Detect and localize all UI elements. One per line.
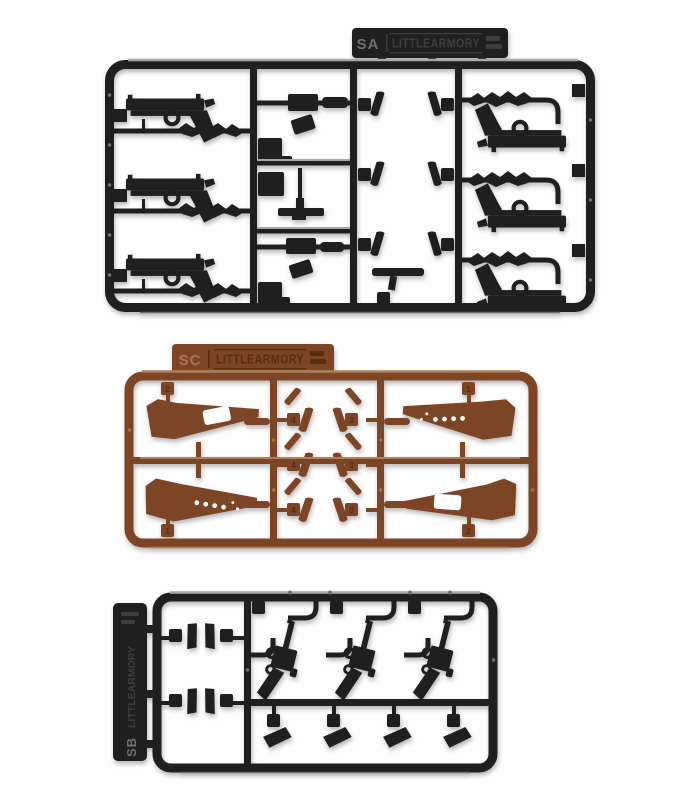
pistol-part — [126, 174, 217, 223]
sa-cell-r1 — [462, 84, 585, 152]
part-tab — [220, 629, 233, 642]
blade-part — [202, 687, 218, 715]
mauser-pistol-part — [411, 615, 465, 706]
sb-runner-frame — [157, 597, 493, 768]
stock-part — [144, 478, 258, 526]
gate-connector — [384, 418, 410, 425]
sa-tag-label: SA — [357, 36, 380, 53]
sa-grip-panel-column — [358, 90, 454, 305]
pistol-part — [475, 183, 566, 232]
sc-panel-row-2: 4 3 — [273, 431, 380, 478]
belt-part — [466, 171, 532, 187]
pistol-part — [475, 263, 566, 312]
sa-panel-row-1 — [358, 90, 454, 117]
part-number: 1 — [466, 384, 471, 394]
grip-panel-part — [298, 496, 314, 523]
stock-part — [404, 478, 518, 525]
part-number: 3 — [349, 505, 354, 515]
grip-panel-part — [298, 451, 314, 478]
pouch-part — [262, 726, 293, 748]
sprue-sc: SC LITTLEARMORY 2 1 — [128, 344, 535, 548]
grip-panel-part — [344, 386, 362, 406]
mauser-pistol-part — [333, 615, 387, 706]
part-tab — [572, 244, 585, 257]
sb-pistol-1 — [251, 597, 316, 706]
grip-panel-part — [427, 90, 442, 117]
part-tab — [572, 84, 585, 97]
blade-part — [184, 687, 200, 715]
pistol-part — [126, 254, 217, 303]
belt-part — [466, 251, 532, 267]
sa-cell-2 — [114, 174, 250, 223]
sb-pistol-3 — [404, 597, 472, 706]
part-number: 3 — [349, 415, 354, 425]
part-tab — [114, 109, 127, 122]
part-tab — [267, 714, 280, 727]
grip-panel-part — [283, 386, 301, 406]
pistol-part — [126, 94, 217, 143]
part-tab — [114, 189, 127, 202]
gate-connector — [244, 418, 270, 425]
part-tab — [114, 269, 127, 282]
blade-part — [202, 622, 218, 650]
grip-panel-part — [298, 406, 314, 433]
sc-panel-row-3: 4 3 — [273, 476, 380, 523]
small-part — [288, 259, 313, 279]
gate-connector — [384, 501, 410, 508]
part-number: 2 — [165, 384, 170, 394]
grip-panel-part — [283, 476, 301, 496]
suppressor-part — [322, 97, 348, 108]
part-tab — [447, 714, 460, 727]
sb-pistol-2 — [326, 597, 394, 706]
part-tab — [408, 601, 421, 614]
mauser-pistol-part — [255, 615, 309, 706]
grip-panel-part — [427, 230, 442, 257]
sa-panel-row-3 — [358, 230, 454, 257]
sc-tag-fine-print — [310, 351, 324, 356]
sc-panel-row-1: 4 3 — [273, 386, 380, 433]
sb-pouch-4 — [442, 706, 473, 749]
sb-tag-label: SB — [124, 737, 139, 757]
grip-panel-part — [427, 160, 442, 187]
product-photo: SA LITTLEARMORY — [0, 0, 690, 800]
sa-panel-row-2 — [358, 160, 454, 187]
grip-panel-part — [370, 230, 385, 257]
part-number: 4 — [291, 460, 296, 470]
sb-pouch-1 — [262, 706, 293, 749]
gate-connector — [244, 501, 270, 508]
part-tab — [220, 694, 233, 707]
pouch-part — [442, 726, 473, 748]
stock-part — [146, 392, 261, 441]
sa-tag-fine-print — [486, 36, 500, 41]
sc-grip-panels: 4 3 4 3 — [273, 386, 380, 523]
sb-pouch-2 — [322, 706, 353, 749]
block-part — [258, 172, 284, 196]
grip-panel-part — [283, 431, 301, 451]
sa-cell-3 — [114, 254, 250, 303]
sprue-sa: SA LITTLEARMORY — [108, 28, 593, 313]
receiver-part — [286, 238, 316, 254]
t-bar-part — [372, 268, 424, 276]
part-number: 3 — [349, 460, 354, 470]
sb-tag-fine-print — [121, 612, 139, 616]
sb-left-row-2 — [157, 687, 247, 715]
sb-pistol-cells — [251, 597, 472, 706]
part-number: 2 — [466, 526, 471, 536]
grip-panel-part — [370, 90, 385, 117]
sa-cell-1 — [114, 94, 250, 143]
sprue-photo-canvas: SA LITTLEARMORY — [0, 0, 690, 800]
sb-brand-logo: LITTLEARMORY — [127, 646, 138, 728]
part-tab — [252, 601, 265, 614]
sc-tag-label: SC — [179, 352, 202, 369]
sa-pistol-column-right — [462, 84, 585, 312]
part-tab — [169, 629, 182, 642]
sc-brand-logo: LITTLEARMORY — [216, 353, 304, 367]
part-tab — [387, 714, 400, 727]
grip-panel-part — [344, 476, 362, 496]
part-tab — [330, 601, 343, 614]
belt-part — [466, 91, 532, 107]
sb-left-row-1 — [157, 622, 247, 650]
sa-cell-r2 — [462, 164, 585, 232]
sa-accessory-column — [257, 94, 350, 304]
part-tab — [327, 714, 340, 727]
sb-left-parts — [157, 622, 247, 715]
receiver-part — [288, 94, 318, 111]
stock-part — [401, 392, 516, 442]
sb-pouch-row — [262, 706, 473, 749]
pistol-part — [475, 103, 566, 152]
part-number: 4 — [291, 415, 296, 425]
part-tab — [169, 694, 182, 707]
part-number: 4 — [291, 505, 296, 515]
sprue-sb: LITTLEARMORY SB — [113, 591, 495, 773]
sb-pouch-3 — [382, 706, 413, 749]
grip-panel-part — [344, 431, 362, 451]
sa-cell-r3 — [462, 244, 585, 312]
part-tab — [572, 164, 585, 177]
sa-pistol-column — [114, 94, 250, 303]
pouch-part — [382, 726, 413, 748]
grip-panel-part — [370, 160, 385, 187]
sprue-sb-tag: LITTLEARMORY SB — [113, 603, 155, 761]
sa-brand-logo: LITTLEARMORY — [392, 37, 480, 51]
suppressor-part — [320, 242, 344, 252]
pouch-part — [322, 726, 353, 748]
part-number: 1 — [165, 526, 170, 536]
blade-part — [184, 622, 200, 650]
small-part — [290, 114, 316, 135]
